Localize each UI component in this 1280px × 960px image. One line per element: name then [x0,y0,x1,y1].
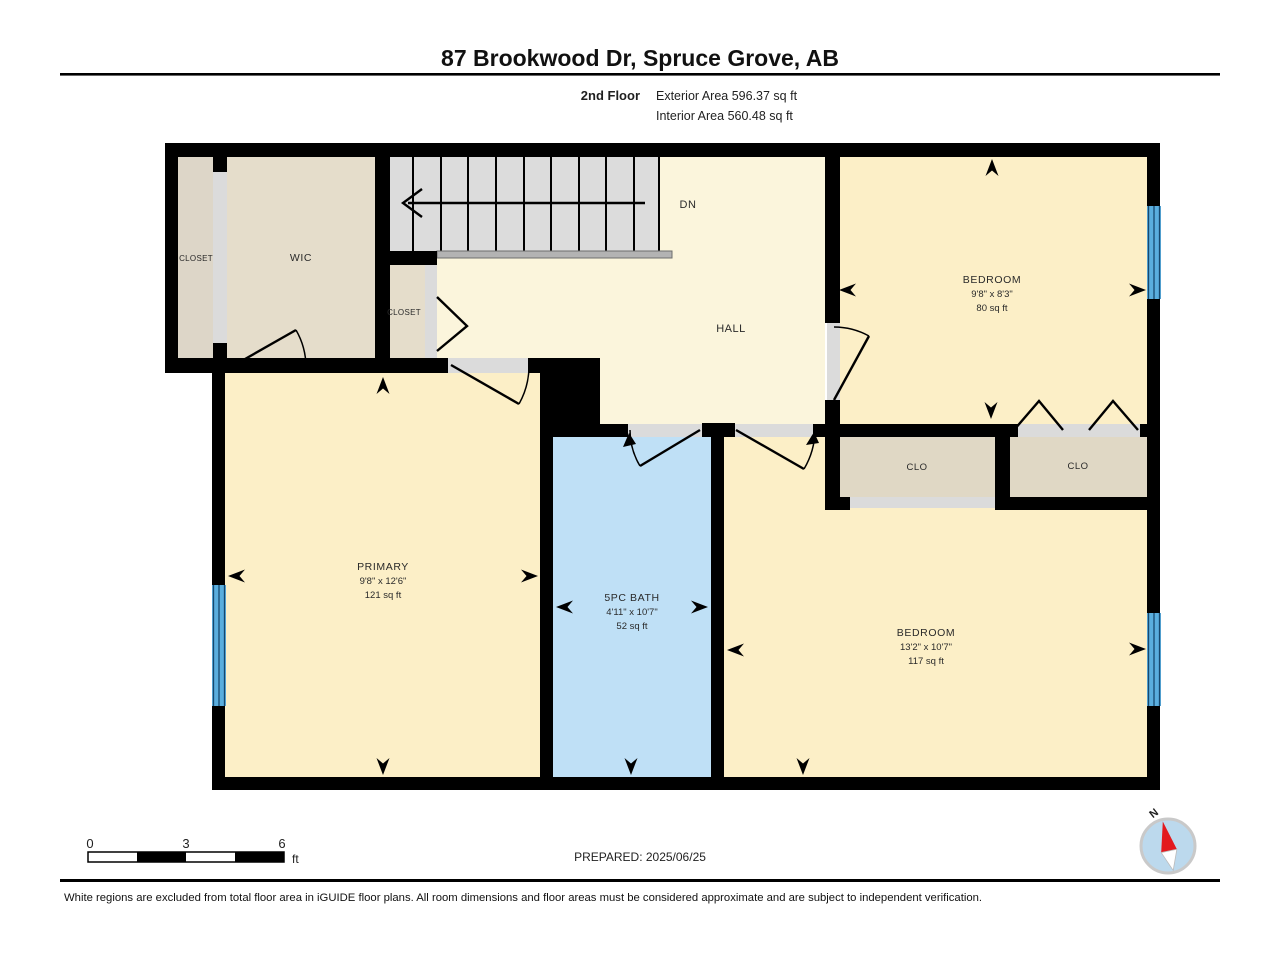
clo-left-label: CLO [906,462,927,473]
clo-right-opening [1018,424,1140,437]
svg-text:0: 0 [86,836,93,851]
scale-unit-label: ft [292,852,299,866]
closet-hall-opening [425,265,437,358]
page-title: 87 Brookwood Dr, Spruce Grove, AB [441,45,839,71]
svg-text:117 sq ft: 117 sq ft [908,656,944,667]
bedroom-top-window [1147,206,1161,299]
svg-text:3: 3 [182,836,189,851]
closet-hall-label: CLOSET [387,308,421,317]
exterior-area-label: Exterior Area 596.37 sq ft [656,89,798,103]
primary-label: PRIMARY 9'8" x 12'6" 121 sq ft [357,561,409,601]
compass-north-label: N [1147,806,1161,820]
scale-bar: 0 3 6 ft [86,836,299,866]
clo-left-opening [848,497,995,508]
header: 87 Brookwood Dr, Spruce Grove, AB 2nd Fl… [60,45,1220,123]
primary-window [212,585,226,706]
compass-icon: N [1141,806,1195,873]
stairs-railing [437,251,672,258]
wic-label: WIC [290,252,312,264]
footer: 0 3 6 ft PREPARED: 2025/06/25 N White re… [60,806,1220,904]
floor-plan-svg: 87 Brookwood Dr, Spruce Grove, AB 2nd Fl… [0,0,1280,960]
svg-text:52 sq ft: 52 sq ft [616,621,648,632]
stairs-dn-label: DN [680,199,697,211]
svg-text:6: 6 [278,836,285,851]
bedroom-bottom-window [1147,613,1161,706]
prepared-date: PREPARED: 2025/06/25 [574,850,706,864]
closet-left-label: CLOSET [179,254,213,263]
floor-plan-page: 87 Brookwood Dr, Spruce Grove, AB 2nd Fl… [0,0,1280,960]
primary-floor [225,373,540,777]
svg-text:121 sq ft: 121 sq ft [365,590,402,601]
disclaimer-text: White regions are excluded from total fl… [64,892,982,904]
interior-area-label: Interior Area 560.48 sq ft [656,109,793,123]
closet-left-opening [213,172,227,343]
svg-text:BEDROOM: BEDROOM [963,274,1021,286]
clo-right-label: CLO [1067,461,1088,472]
floor-label: 2nd Floor [581,88,640,103]
hall-label: HALL [716,323,746,335]
svg-text:80 sq ft: 80 sq ft [976,303,1008,314]
svg-text:PRIMARY: PRIMARY [357,561,409,573]
svg-text:9'8" x 12'6": 9'8" x 12'6" [360,576,407,587]
header-divider [60,73,1220,76]
svg-text:4'11" x 10'7": 4'11" x 10'7" [606,607,657,618]
svg-text:BEDROOM: BEDROOM [897,627,955,639]
svg-text:13'2" x 10'7": 13'2" x 10'7" [900,642,952,653]
svg-text:5PC BATH: 5PC BATH [604,592,659,604]
footer-divider [60,879,1220,882]
svg-text:9'8" x 8'3": 9'8" x 8'3" [971,289,1013,300]
bedroom-top-door-threshold [827,323,840,400]
